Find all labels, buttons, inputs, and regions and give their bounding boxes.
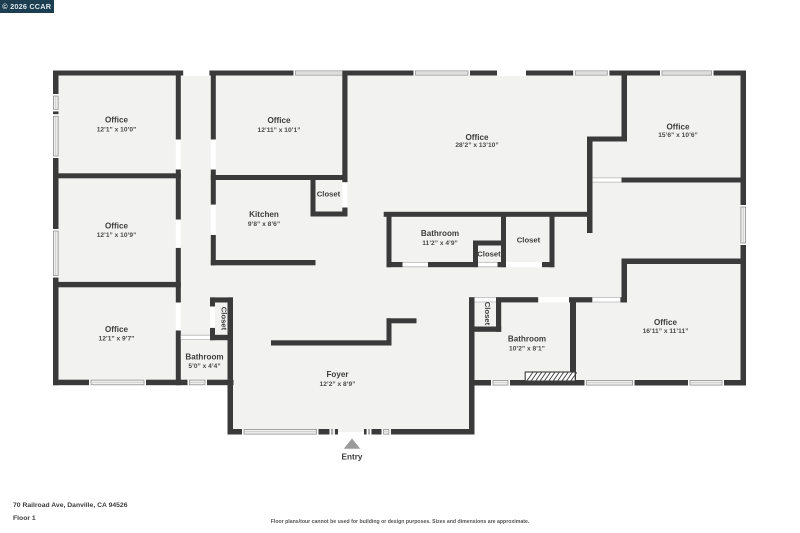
svg-text:Office: Office (105, 222, 128, 231)
svg-text:12’1” x 10’0”: 12’1” x 10’0” (97, 126, 137, 133)
svg-text:Bathroom: Bathroom (185, 353, 223, 362)
svg-text:Kitchen: Kitchen (249, 210, 279, 219)
svg-text:Office: Office (667, 123, 690, 132)
svg-text:10’2” x 8’1”: 10’2” x 8’1” (509, 345, 545, 352)
svg-text:Closet: Closet (317, 190, 341, 199)
svg-text:15’6” x 10’6”: 15’6” x 10’6” (658, 132, 698, 139)
svg-text:Entry: Entry (342, 453, 363, 462)
svg-text:Bathroom: Bathroom (508, 335, 546, 344)
svg-text:5’0” x 4’4”: 5’0” x 4’4” (188, 363, 220, 370)
svg-text:12’11” x 10’1”: 12’11” x 10’1” (258, 127, 301, 134)
svg-text:12’2” x 8’9”: 12’2” x 8’9” (320, 381, 356, 388)
svg-text:Office: Office (654, 318, 677, 327)
svg-text:12’1” x 9’7”: 12’1” x 9’7” (99, 335, 135, 342)
svg-text:11’2” x 4’9”: 11’2” x 4’9” (422, 240, 458, 247)
svg-text:Closet: Closet (220, 307, 229, 331)
svg-text:12’1” x 10’9”: 12’1” x 10’9” (97, 232, 137, 239)
svg-text:16’11” x 11’11”: 16’11” x 11’11” (643, 328, 689, 335)
svg-text:Bathroom: Bathroom (421, 229, 459, 238)
svg-text:Closet: Closet (517, 236, 541, 245)
svg-text:Closet: Closet (477, 250, 501, 259)
svg-text:Closet: Closet (483, 302, 492, 326)
svg-text:Office: Office (105, 116, 128, 125)
svg-text:9’8” x 8’6”: 9’8” x 8’6” (248, 221, 280, 228)
svg-text:Office: Office (466, 133, 489, 142)
svg-text:Office: Office (105, 325, 128, 334)
svg-text:28’2” x 13’10”: 28’2” x 13’10” (455, 142, 498, 149)
svg-text:Office: Office (268, 116, 291, 125)
svg-text:Foyer: Foyer (326, 370, 349, 379)
